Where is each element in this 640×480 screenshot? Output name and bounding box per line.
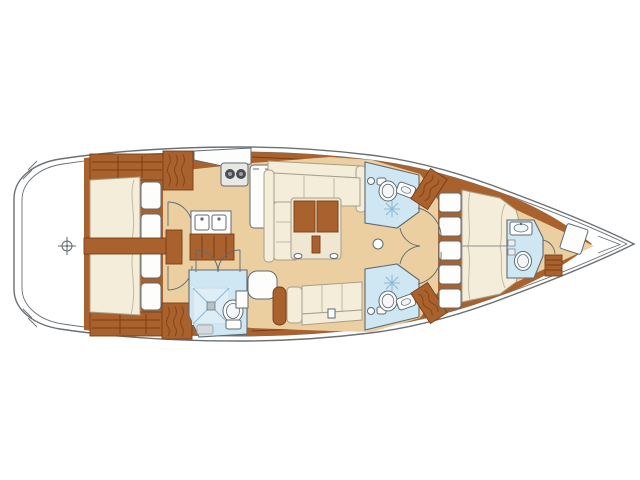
roll-holder [368,308,375,315]
step-block [166,230,182,264]
double-sink [191,211,231,235]
storage-box [545,255,562,276]
shower-drain [384,201,400,217]
hanging-locker [163,151,193,190]
bath-mat [197,325,213,334]
pillow [141,182,161,209]
yacht-floor-plan [0,0,640,480]
pillow [141,214,161,241]
headboard-cushion [439,217,461,236]
shelf [508,240,515,246]
vanity [236,291,248,308]
floor-plan-canvas [0,0,640,480]
shelf [508,249,515,255]
galley-cabinet [190,234,234,260]
mast-post [373,239,383,249]
headboard-cushion [439,265,461,284]
roll-holder [368,178,375,185]
hanging-locker [162,303,192,339]
shelf-unit [90,312,162,336]
shower-drain [384,275,400,291]
pillow [141,251,161,278]
sink-icon [510,222,532,235]
headboard-cushion [439,241,461,260]
starboard-settee [287,282,362,325]
headboard-cushion [439,289,461,308]
pillow [141,283,161,310]
headboard-cushion [439,193,461,212]
sideboard [273,287,286,325]
folding-table [291,198,341,259]
stove-icon [221,163,248,186]
shelf-unit [90,154,164,180]
toilet-icon [515,252,532,271]
